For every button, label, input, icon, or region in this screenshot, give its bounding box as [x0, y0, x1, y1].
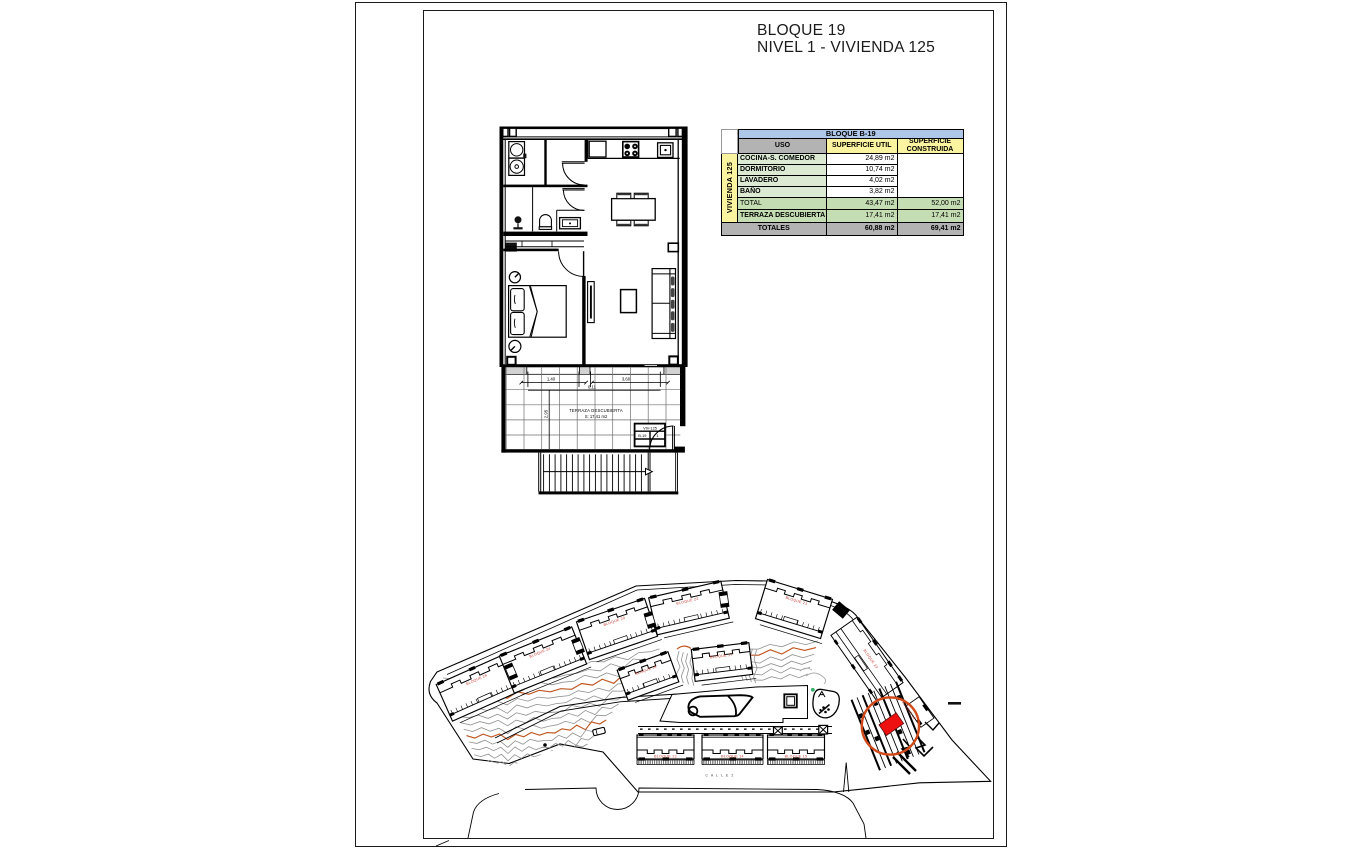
svg-text:1: 1 — [656, 433, 658, 438]
svg-text:VIV-125: VIV-125 — [643, 425, 657, 430]
svg-text:BLOQUE 14: BLOQUE 14 — [721, 755, 744, 759]
svg-text:S: 17,41 m2: S: 17,41 m2 — [585, 414, 608, 419]
svg-text:BLOQUE 13: BLOQUE 13 — [654, 755, 677, 759]
svg-text:6,11: 6,11 — [588, 385, 597, 390]
svg-text:TERRAZA DESCUBIERTA: TERRAZA DESCUBIERTA — [569, 408, 623, 413]
svg-text:1,40: 1,40 — [547, 377, 556, 382]
svg-text:2,95: 2,95 — [543, 409, 548, 418]
svg-text:BLOQUE 15: BLOQUE 15 — [785, 755, 808, 759]
svg-text:3,60: 3,60 — [622, 377, 631, 382]
svg-text:C A L L E 2: C A L L E 2 — [706, 774, 735, 778]
svg-text:B-19: B-19 — [638, 433, 646, 438]
